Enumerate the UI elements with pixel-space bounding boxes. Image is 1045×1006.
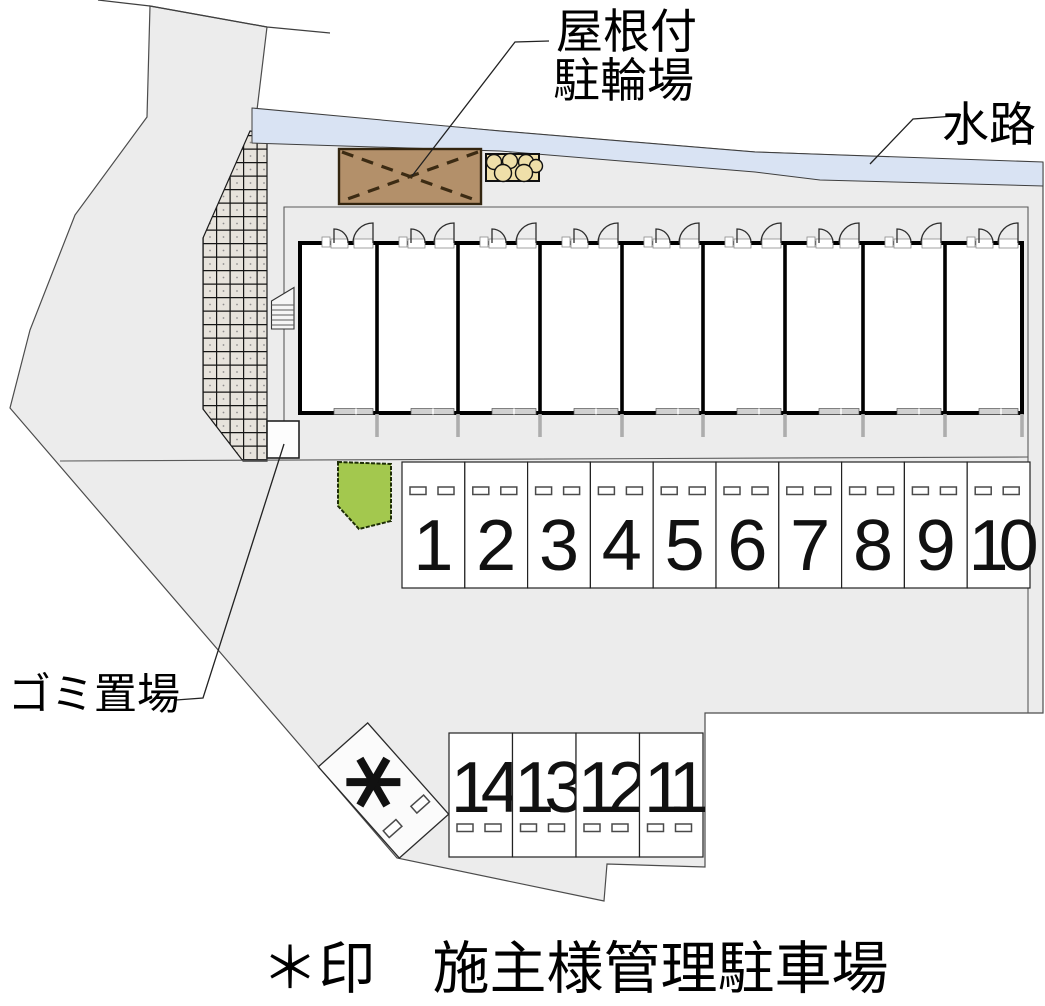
wheel-stopper bbox=[912, 487, 928, 495]
downspout-tick bbox=[783, 414, 787, 437]
space-number: 10 bbox=[969, 506, 1037, 586]
bike-shed-label-line1: 屋根付 bbox=[556, 5, 697, 58]
wheel-stopper bbox=[473, 487, 489, 495]
door-opening bbox=[599, 239, 618, 248]
space-number: 12 bbox=[578, 748, 645, 828]
window-strip bbox=[334, 409, 373, 415]
downspout-tick bbox=[1020, 414, 1024, 437]
wheel-stopper bbox=[410, 487, 426, 495]
window-strip bbox=[979, 409, 1018, 415]
space-number: 1 bbox=[413, 506, 453, 586]
garbage-area-box bbox=[267, 421, 299, 458]
site-plan-svg: 12345678910 14131211 bbox=[0, 0, 1045, 1006]
space-number: 6 bbox=[727, 506, 767, 586]
wheel-stopper bbox=[724, 487, 740, 495]
wheel-stopper bbox=[787, 487, 803, 495]
wheel-stopper bbox=[975, 487, 991, 495]
downspout-tick bbox=[456, 414, 460, 437]
downspout-tick bbox=[375, 414, 379, 437]
wheel-stopper bbox=[1003, 487, 1019, 495]
wheel-stopper bbox=[564, 487, 580, 495]
door-opening bbox=[354, 239, 373, 248]
bike-shed-label-line2: 駐輪場 bbox=[553, 54, 694, 107]
space-number: 7 bbox=[790, 506, 830, 586]
parking-row-2: 14131211 bbox=[449, 733, 706, 857]
space-number: 9 bbox=[916, 506, 956, 586]
door-jamb bbox=[480, 237, 488, 247]
downspout-tick bbox=[943, 414, 947, 437]
door-opening bbox=[517, 239, 536, 248]
wheel-stopper bbox=[752, 487, 768, 495]
door-jamb bbox=[725, 237, 733, 247]
wheel-stopper bbox=[878, 487, 894, 495]
door-opening bbox=[840, 239, 859, 248]
wheel-stopper bbox=[536, 487, 552, 495]
door-jamb bbox=[562, 237, 570, 247]
door-jamb bbox=[885, 237, 893, 247]
window-strip bbox=[819, 409, 859, 415]
wheel-stopper bbox=[626, 487, 642, 495]
building-outline bbox=[300, 243, 1022, 413]
door-opening bbox=[922, 239, 941, 248]
door-jamb bbox=[399, 237, 407, 247]
door-jamb bbox=[322, 237, 330, 247]
wheel-stopper bbox=[438, 487, 454, 495]
space-number: 11 bbox=[644, 748, 706, 828]
door-jamb bbox=[807, 237, 815, 247]
downspout-tick bbox=[538, 414, 542, 437]
door-jamb bbox=[967, 237, 975, 247]
site-plan: 12345678910 14131211 bbox=[0, 0, 1045, 1006]
door-opening bbox=[762, 239, 781, 248]
wheel-stopper bbox=[940, 487, 956, 495]
bicycle-shed bbox=[339, 149, 481, 204]
door-opening bbox=[680, 239, 699, 248]
parking-row-1: 12345678910 bbox=[402, 462, 1037, 588]
wheel-stopper bbox=[815, 487, 831, 495]
waterway-label: 水路 bbox=[942, 98, 1036, 151]
door-opening bbox=[999, 239, 1018, 248]
wheel-stopper bbox=[598, 487, 614, 495]
space-number: 5 bbox=[665, 506, 705, 586]
space-number: 3 bbox=[539, 506, 579, 586]
downspout-tick bbox=[861, 414, 865, 437]
caption-text: ＊印 施主様管理駐車場 bbox=[262, 937, 889, 1001]
space-number: 13 bbox=[514, 748, 581, 828]
garbage-label: ゴミ置場 bbox=[8, 671, 180, 719]
planter-symbol bbox=[486, 154, 543, 182]
door-opening bbox=[435, 239, 454, 248]
space-number: 8 bbox=[853, 506, 893, 586]
wheel-stopper bbox=[689, 487, 705, 495]
space-number: 4 bbox=[602, 506, 642, 586]
downspout-tick bbox=[701, 414, 705, 437]
space-number: 2 bbox=[476, 506, 516, 586]
space-number: 14 bbox=[451, 748, 519, 828]
apartment-building bbox=[300, 223, 1024, 437]
wheel-stopper bbox=[661, 487, 677, 495]
wheel-stopper bbox=[501, 487, 517, 495]
door-jamb bbox=[644, 237, 652, 247]
wheel-stopper bbox=[850, 487, 866, 495]
downspout-tick bbox=[620, 414, 624, 437]
